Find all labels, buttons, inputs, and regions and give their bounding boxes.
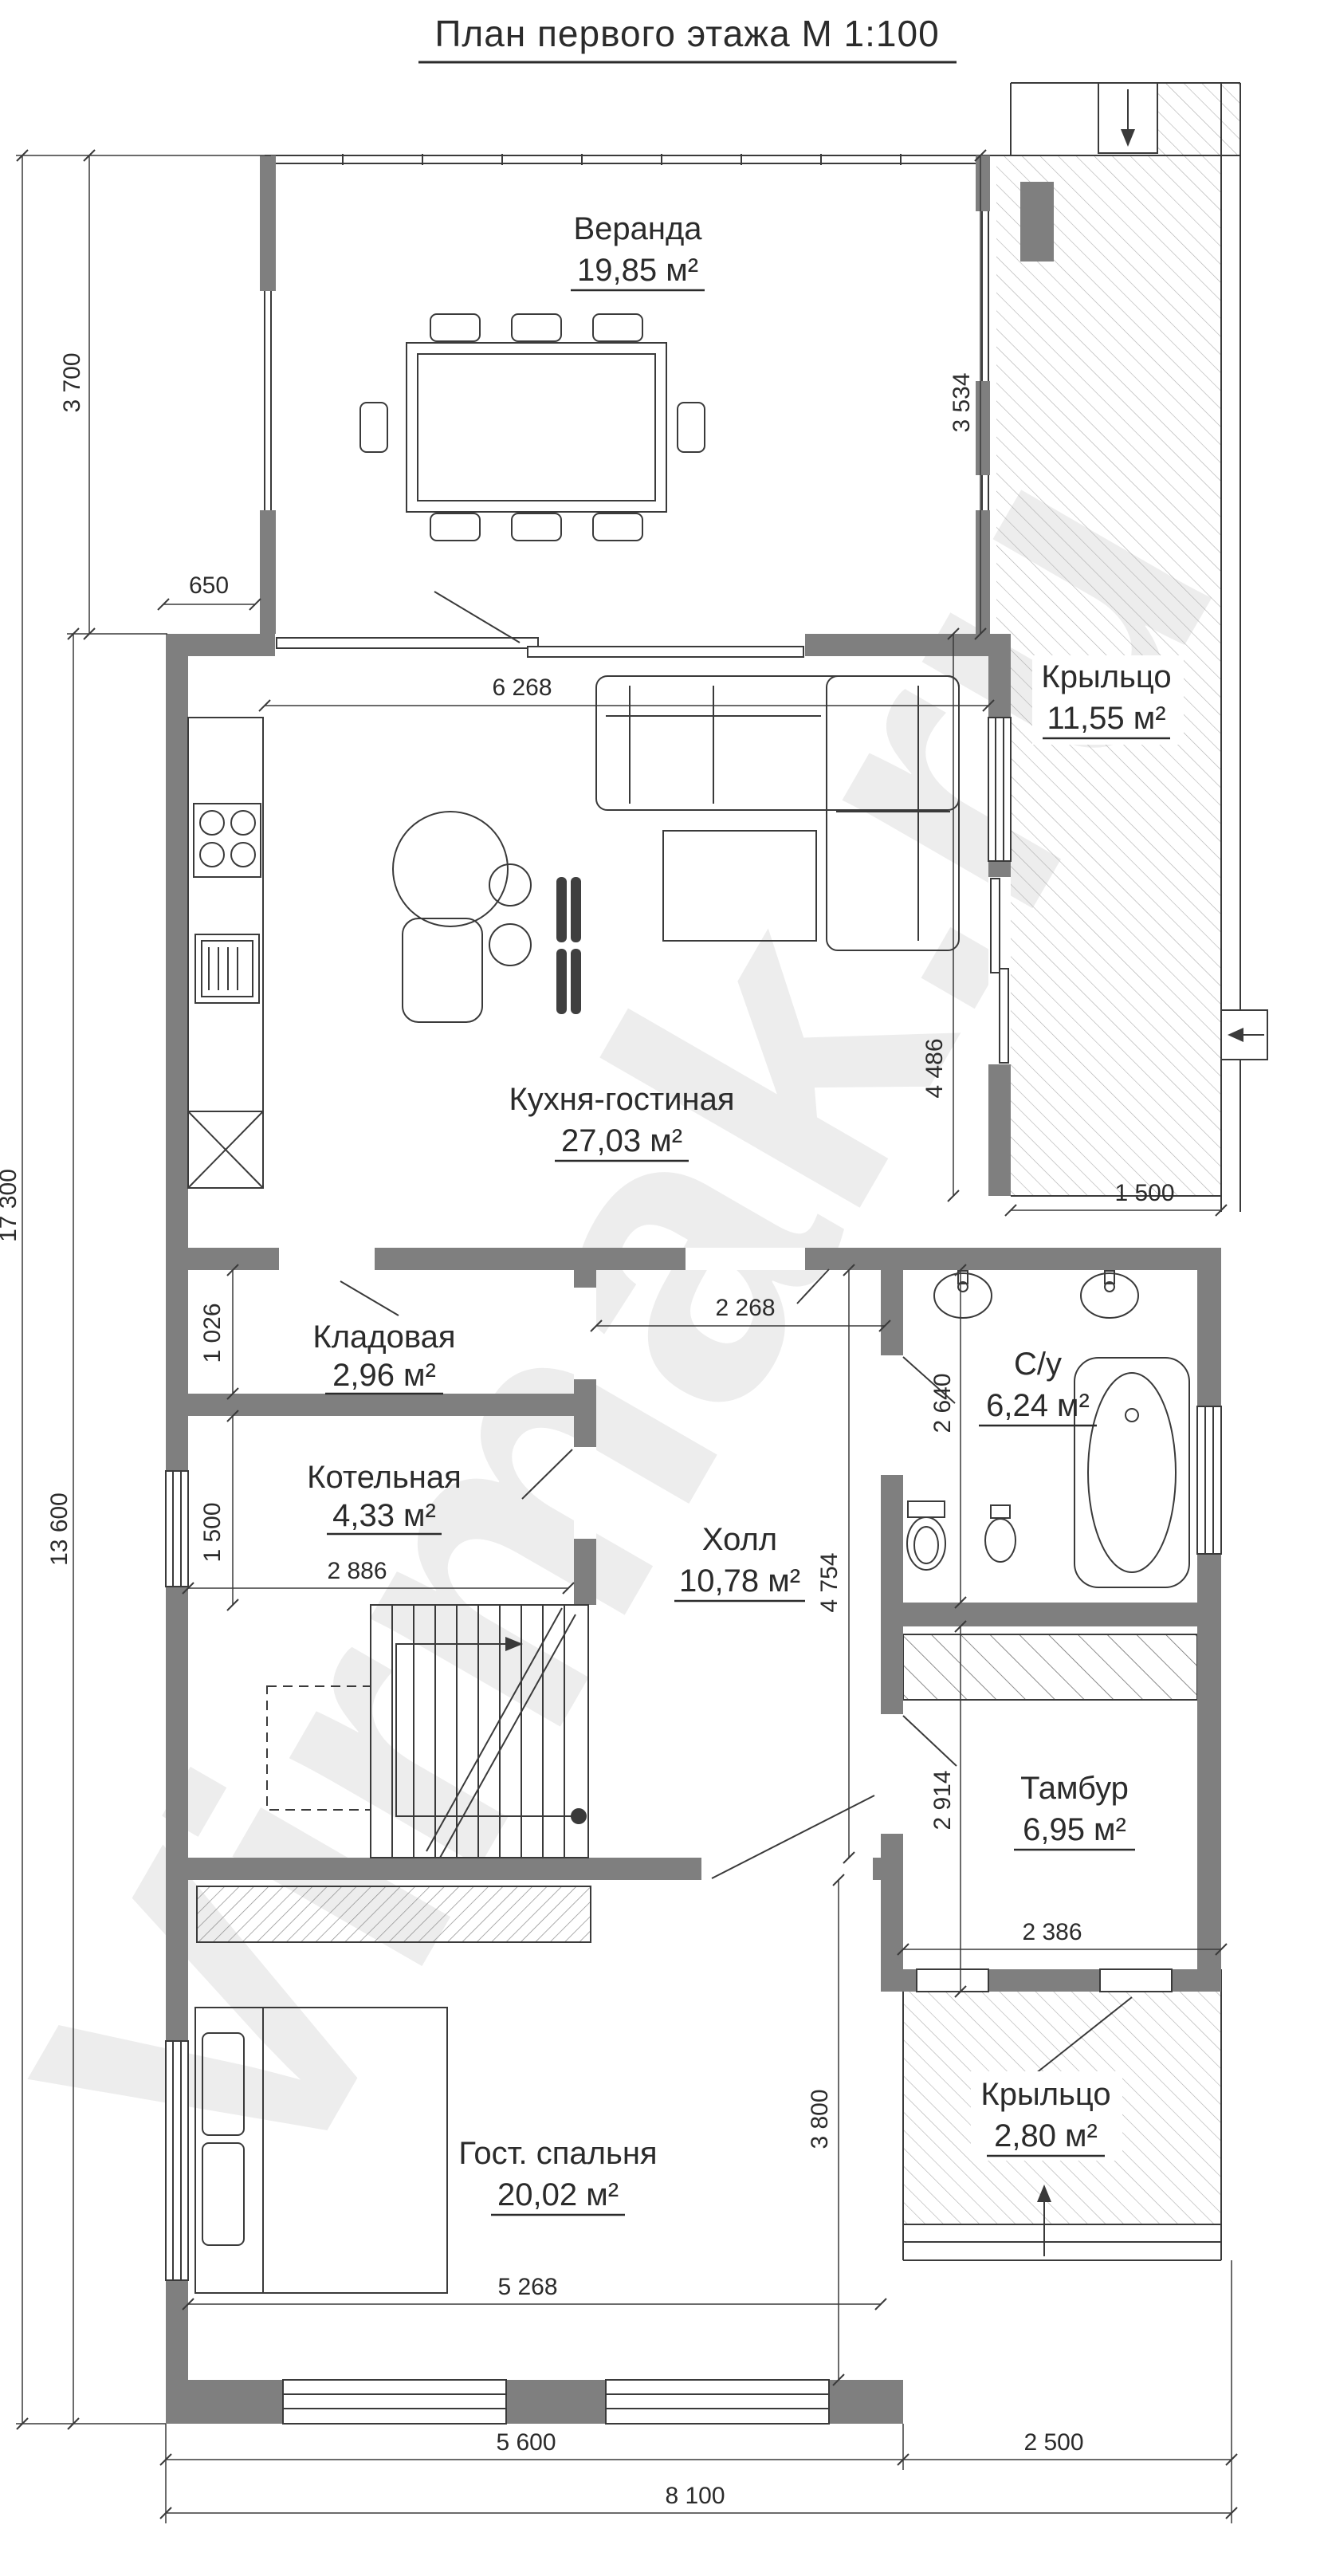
room-area: 10,78 м²	[679, 1563, 800, 1599]
room-area: 27,03 м²	[561, 1123, 682, 1158]
room-area: 11,55 м²	[1047, 701, 1165, 736]
bathtub	[1074, 1358, 1189, 1587]
veranda-post-tl	[260, 155, 276, 291]
veranda-post-br	[976, 510, 990, 634]
dim-6268: 6 268	[492, 674, 552, 701]
veranda-post-bl	[260, 510, 276, 634]
room-name: Крыльцо	[980, 2077, 1110, 2112]
door-hall-kitchen	[686, 1248, 805, 1270]
dim-4486: 4 486	[921, 1038, 948, 1098]
dim-2386: 2 386	[1022, 1919, 1082, 1945]
window-bathroom	[1197, 1406, 1221, 1554]
door-bedroom	[701, 1858, 873, 1880]
door-vestibule-hall	[881, 1714, 903, 1834]
dim-3800: 3 800	[807, 2089, 833, 2149]
window-bottom-1	[283, 2380, 506, 2424]
room-area: 2,96 м²	[332, 1358, 436, 1393]
door-boiler	[574, 1447, 596, 1539]
veranda-post-r	[976, 381, 990, 475]
sink-left	[934, 1271, 992, 1318]
door-porch-panel2	[1000, 969, 1008, 1063]
window-kitchen-right	[988, 718, 1011, 861]
dim-8100: 8 100	[665, 2483, 725, 2509]
wall-right-bath	[1197, 1248, 1221, 1969]
room-label-veranda: Веранда 19,85 м²	[571, 211, 705, 290]
dim-1026: 1 026	[199, 1303, 226, 1363]
dim-5268: 5 268	[497, 2274, 557, 2300]
dim-1500-right: 1 500	[1114, 1180, 1174, 1206]
door-storage	[279, 1248, 375, 1270]
dim-13600: 13 600	[46, 1493, 73, 1566]
room-area: 6,95 м²	[1023, 1812, 1126, 1847]
bidet	[985, 1505, 1016, 1562]
dim-2500: 2 500	[1023, 2429, 1083, 2456]
veranda-post-tr	[976, 155, 990, 211]
window-top-panel1	[277, 638, 538, 648]
window-top-panel2	[528, 647, 803, 657]
dim-3700: 3 700	[59, 352, 85, 412]
dining-chairs	[360, 314, 705, 541]
room-area: 19,85 м²	[577, 253, 698, 288]
room-label-bedroom: Гост. спальня 20,02 м²	[458, 2136, 657, 2215]
dining-table	[407, 343, 666, 512]
dim-2886: 2 886	[327, 1558, 387, 1584]
title-block: План первого этажа М 1:100	[418, 13, 957, 62]
dim-5600: 5 600	[496, 2429, 556, 2456]
wall-bath-vestibule	[881, 1603, 1197, 1626]
door-porch-bottom-2	[1100, 1969, 1172, 1992]
room-area: 6,24 м²	[986, 1388, 1090, 1423]
dim-2914: 2 914	[929, 1770, 956, 1830]
vestibule-mat-hatch	[903, 1634, 1197, 1700]
page-title: План первого этажа М 1:100	[434, 13, 939, 54]
top-strip-hatch	[1157, 83, 1240, 155]
dim-17300: 17 300	[0, 1169, 22, 1242]
floor-plan-drawing: Virmak.ru	[0, 0, 1320, 2576]
room-name: Кухня-гостиная	[509, 1082, 735, 1117]
room-area: 2,80 м²	[994, 2118, 1098, 2153]
window-bottom-2	[606, 2380, 829, 2424]
room-area: 4,33 м²	[332, 1498, 436, 1533]
room-label-bathroom: С/у 6,24 м²	[979, 1347, 1097, 1426]
dim-2640: 2 640	[929, 1373, 956, 1433]
room-area: 20,02 м²	[497, 2177, 619, 2212]
room-name: Котельная	[307, 1460, 462, 1495]
room-label-vestibule: Тамбур 6,95 м²	[1014, 1771, 1135, 1850]
door-storage-hall	[574, 1288, 596, 1379]
door-bathroom	[881, 1355, 903, 1475]
room-name: Веранда	[573, 211, 702, 246]
dim-1500-left: 1 500	[199, 1502, 226, 1562]
room-name: Кладовая	[312, 1319, 455, 1355]
kitchen-counter	[188, 718, 263, 1188]
window-boiler	[166, 1471, 188, 1587]
toilet	[907, 1501, 945, 1570]
dim-2268: 2 268	[715, 1295, 775, 1321]
door-porch-bottom-1	[917, 1969, 988, 1992]
door-porch-panel1	[991, 879, 1000, 973]
room-name: С/у	[1014, 1347, 1062, 1382]
window-bedroom	[166, 2041, 188, 2280]
wardrobe-hatch	[197, 1886, 591, 1942]
wall-storage-boiler	[188, 1394, 574, 1416]
room-name: Крыльцо	[1041, 659, 1171, 694]
porch-pillar	[1020, 182, 1054, 262]
room-name: Холл	[702, 1522, 777, 1557]
sink-right	[1081, 1271, 1138, 1318]
dim-650: 650	[189, 572, 229, 599]
dim-3534: 3 534	[949, 372, 975, 432]
room-name: Тамбур	[1020, 1771, 1129, 1806]
kitchen-island	[393, 812, 531, 1022]
vestibule-door-leaf	[903, 1716, 957, 1766]
room-name: Гост. спальня	[458, 2136, 657, 2171]
dim-4754: 4 754	[816, 1552, 843, 1612]
